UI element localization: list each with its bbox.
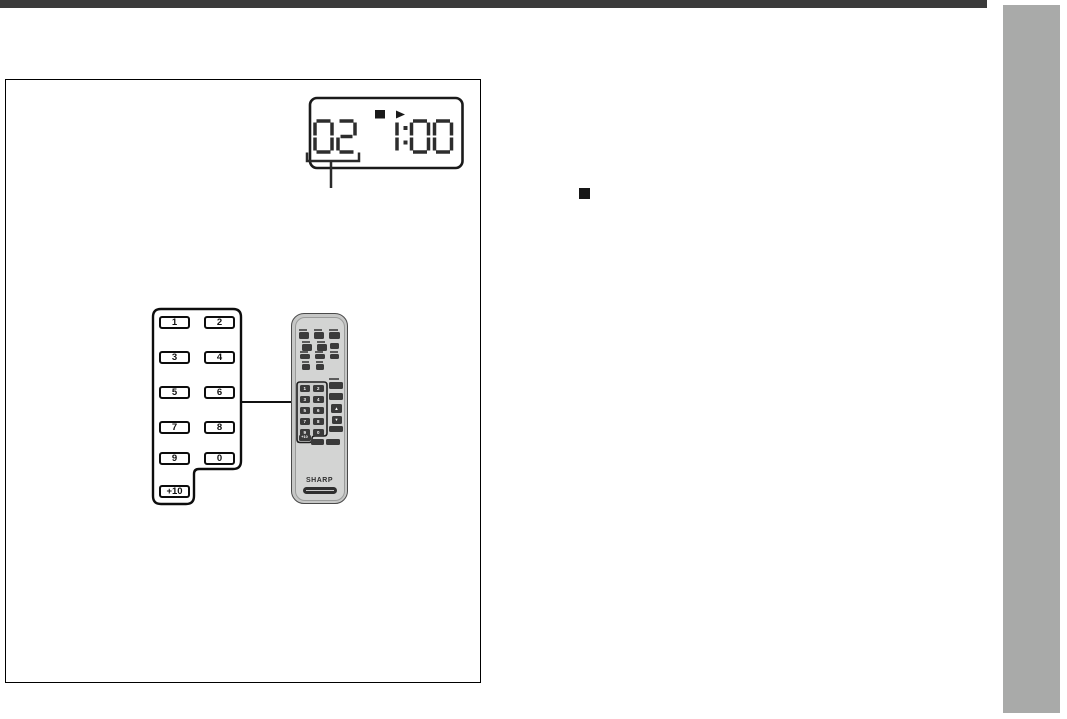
keypad-diagram-button-2: 2: [204, 316, 235, 329]
keypad-diagram-button-8: 8: [204, 421, 235, 434]
remote-side-button: [329, 393, 343, 400]
keypad-diagram-outline: [148, 304, 253, 509]
figure-box: 1234567890+10 1234567890+10 ▲▼ SHARP: [5, 79, 481, 683]
remote-number-button-8: 8: [313, 418, 324, 426]
remote-function-button: [315, 354, 325, 359]
remote-side-button: [329, 382, 343, 390]
keypad-diagram-button-0: 0: [204, 452, 235, 465]
remote-up-button: ▲: [331, 404, 342, 413]
keypad-diagram-button-4: 4: [204, 351, 235, 364]
remote-function-button: [302, 344, 312, 351]
remote-control: 1234567890+10 ▲▼ SHARP: [291, 313, 348, 504]
keypad-diagram-button-7: 7: [159, 421, 190, 434]
remote-down-button: ▼: [332, 416, 342, 424]
chapter-side-tab: [1003, 5, 1060, 713]
remote-number-button-6: 6: [313, 407, 324, 415]
keypad-outline-path: [153, 309, 241, 504]
remote-function-button: [300, 354, 310, 359]
remote-number-button-plus10: +10: [299, 435, 311, 441]
remote-function-button: [330, 343, 339, 349]
page-top-rule: [0, 0, 987, 8]
remote-button-label-line: [329, 378, 339, 380]
remote-button-label-line: [314, 329, 322, 331]
remote-function-button: [299, 332, 309, 339]
remote-number-button-4: 4: [313, 396, 324, 404]
remote-button-label-line: [300, 351, 308, 353]
stop-icon: [375, 110, 385, 119]
remote-side-button: [329, 426, 343, 432]
keypad-callout-line: [241, 401, 295, 403]
remote-model-label: [303, 487, 337, 494]
remote-model-label-text-line: [306, 490, 334, 491]
remote-bottom-button: [311, 439, 324, 445]
remote-number-button-7: 7: [300, 418, 311, 426]
remote-function-button: [317, 344, 327, 351]
keypad-diagram-button-9: 9: [159, 452, 190, 465]
keypad-diagram-button-1: 1: [159, 316, 190, 329]
remote-function-button: [316, 364, 324, 370]
remote-button-label-line: [315, 351, 323, 353]
remote-button-label-line: [329, 329, 338, 331]
manual-page: 1234567890+10 1234567890+10 ▲▼ SHARP: [0, 0, 1067, 719]
cd-display: [301, 93, 471, 191]
remote-button-label-line: [317, 341, 325, 343]
section-bullet-icon: [579, 188, 590, 199]
remote-function-button: [302, 364, 310, 370]
remote-function-button: [329, 332, 340, 339]
keypad-diagram-button-3: 3: [159, 351, 190, 364]
remote-number-button-2: 2: [313, 385, 324, 393]
remote-number-button-1: 1: [300, 385, 311, 393]
keypad-diagram-button-5: 5: [159, 386, 190, 399]
remote-number-button-5: 5: [300, 407, 311, 415]
keypad-diagram-button-plus10: +10: [159, 485, 190, 498]
remote-function-button: [330, 354, 339, 359]
remote-number-button-3: 3: [300, 396, 311, 404]
remote-button-label-line: [302, 341, 310, 343]
remote-function-button: [314, 332, 324, 339]
remote-button-label-line: [299, 329, 307, 331]
remote-bottom-button: [326, 439, 340, 445]
remote-button-label-line: [316, 361, 323, 363]
remote-button-label-line: [330, 351, 338, 353]
remote-number-button-0: 0: [313, 429, 324, 437]
keypad-diagram-button-6: 6: [204, 386, 235, 399]
remote-button-label-line: [302, 361, 309, 363]
remote-brand-logo: SHARP: [292, 477, 347, 484]
